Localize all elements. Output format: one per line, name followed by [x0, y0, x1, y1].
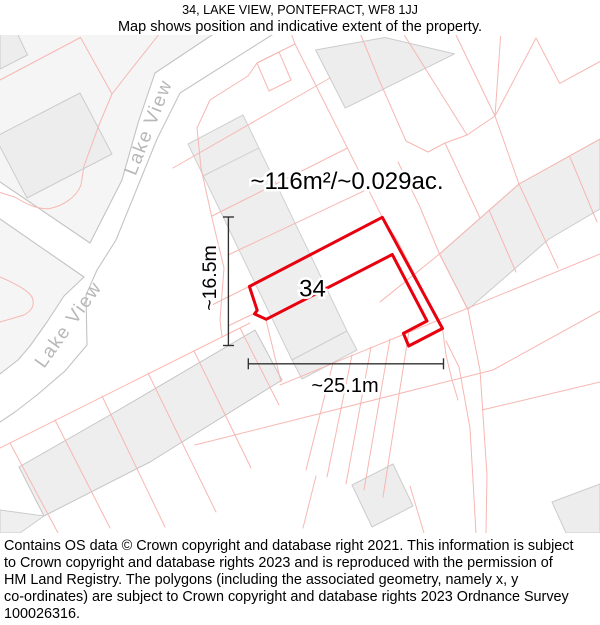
svg-text:34: 34 — [299, 276, 326, 303]
svg-text:~116m²/~0.029ac.: ~116m²/~0.029ac. — [250, 168, 443, 195]
svg-text:100026316.: 100026316. — [4, 606, 80, 622]
svg-text:to Crown copyright and databas: to Crown copyright and database rights 2… — [4, 555, 554, 571]
svg-text:~16.5m: ~16.5m — [199, 245, 221, 311]
svg-text:HM Land Registry. The polygons: HM Land Registry. The polygons (includin… — [4, 572, 519, 588]
svg-text:~25.1m: ~25.1m — [311, 375, 378, 397]
svg-text:34, LAKE VIEW, PONTEFRACT, WF8: 34, LAKE VIEW, PONTEFRACT, WF8 1JJ — [182, 3, 418, 17]
svg-text:Contains OS data © Crown copyr: Contains OS data © Crown copyright and d… — [4, 538, 573, 554]
svg-text:Map shows position and indicat: Map shows position and indicative extent… — [118, 19, 482, 35]
svg-text:co-ordinates) are subject to C: co-ordinates) are subject to Crown copyr… — [4, 589, 570, 605]
